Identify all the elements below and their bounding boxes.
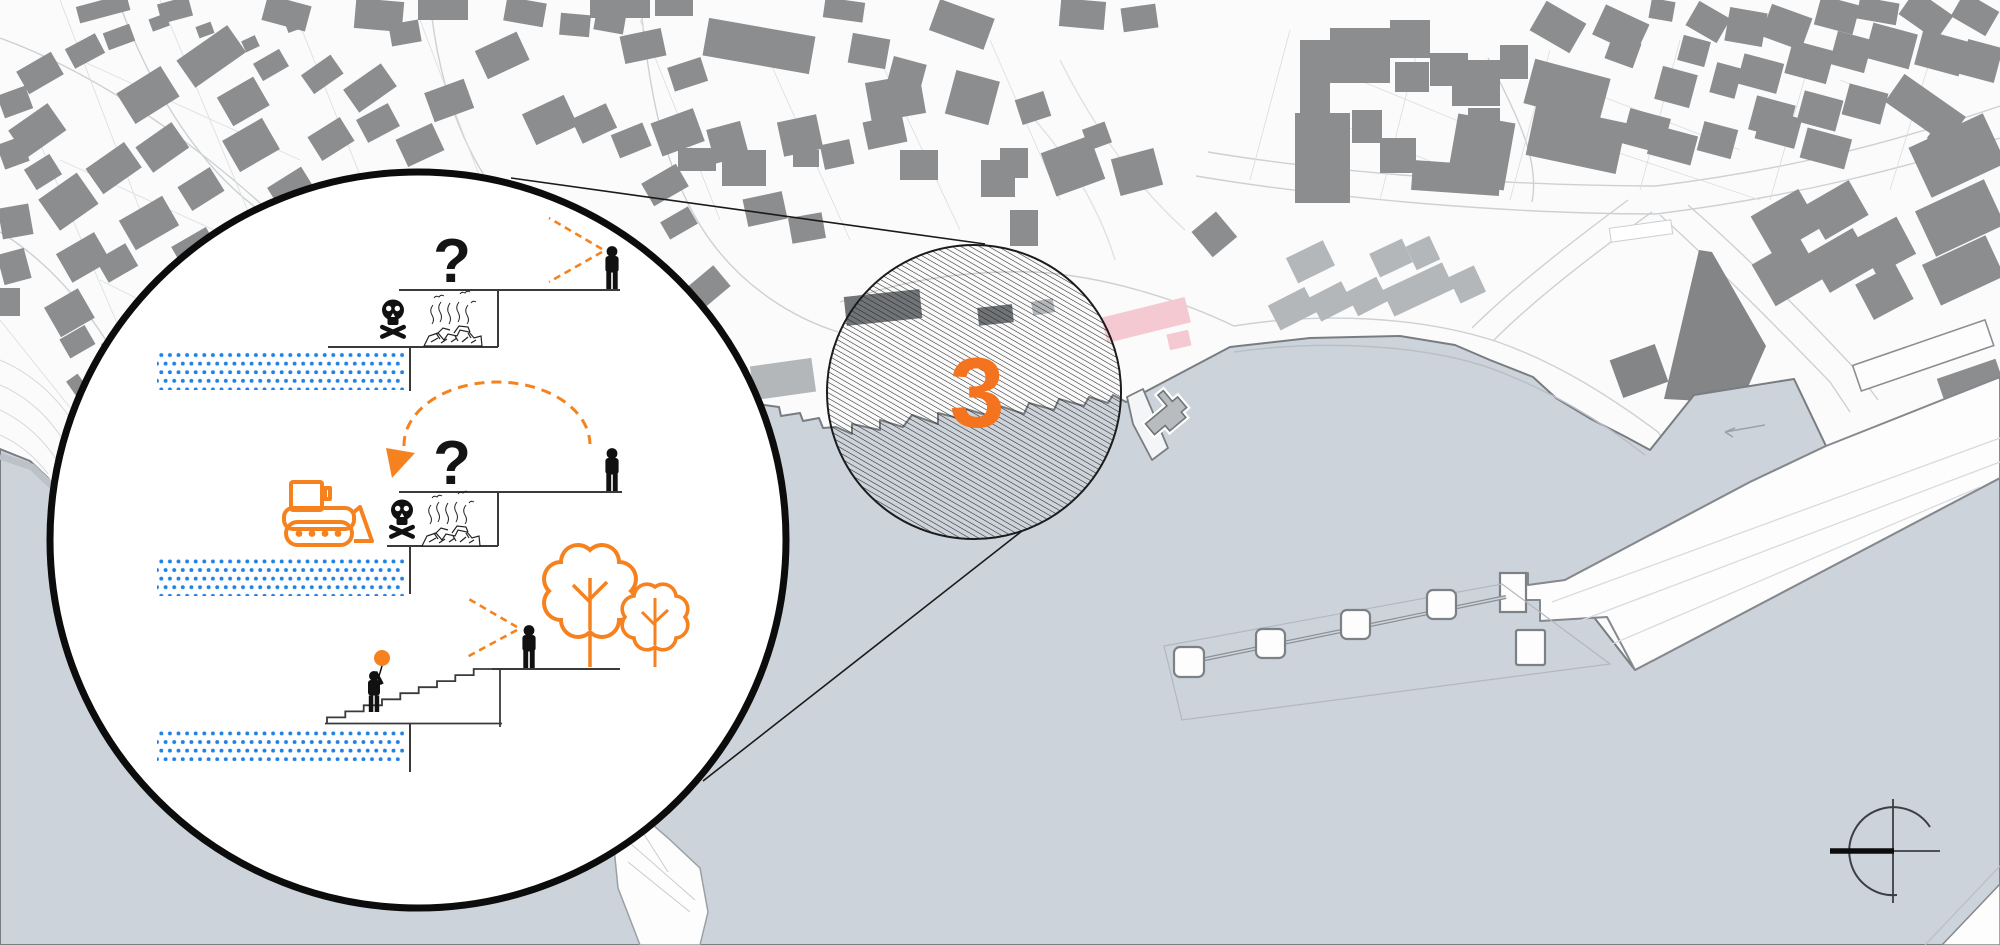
svg-text:?: ? (433, 429, 471, 498)
svg-text:?: ? (433, 227, 471, 296)
svg-text:3: 3 (949, 337, 1004, 448)
